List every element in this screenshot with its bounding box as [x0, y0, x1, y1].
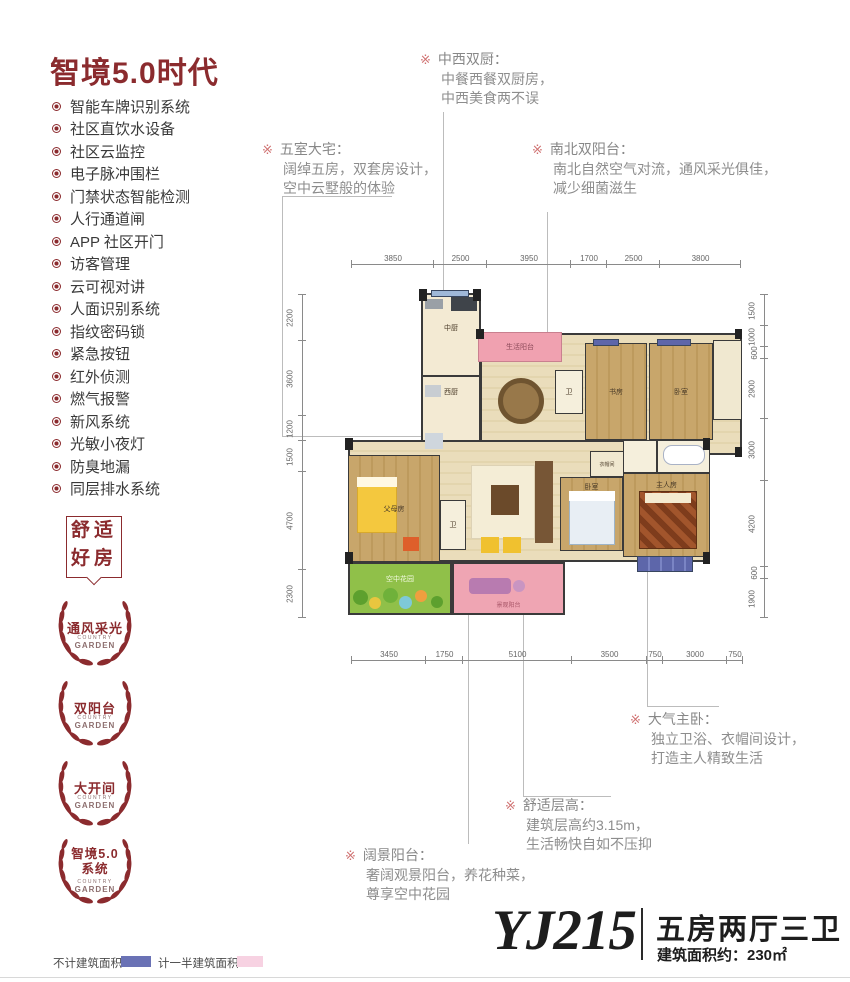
feature-label: 电子脉冲围栏	[70, 163, 160, 184]
badge-sub: GARDEN	[49, 885, 141, 894]
bed-pillow	[569, 491, 615, 501]
feature-label: 燃气报警	[70, 388, 130, 409]
bed-pillow	[645, 493, 691, 503]
feature-item: 智能车牌识别系统	[52, 95, 190, 118]
badge-ventilation: 通风采光 COUNTRY GARDEN	[49, 592, 141, 670]
bathtub	[663, 445, 705, 465]
stamp-line: 舒适	[67, 517, 121, 545]
room-label-kitchen-west: 西厨	[444, 387, 458, 397]
feature-label: 光敏小夜灯	[70, 433, 145, 454]
feature-label: 社区云监控	[70, 141, 145, 162]
room-label-sky-garden: 空中花园	[386, 574, 414, 584]
flower-marker-icon: ※	[505, 798, 516, 813]
bullet-icon	[52, 327, 61, 336]
feature-label: 同层排水系统	[70, 478, 160, 499]
feature-label: 红外侦测	[70, 366, 130, 387]
kitchen-counter	[425, 299, 443, 309]
callout-title: 阔景阳台：	[363, 847, 433, 863]
room-service-balcony: 生活阳台	[478, 332, 562, 362]
room-label-bath: 卫	[566, 387, 573, 397]
balcony-cushion	[513, 580, 525, 592]
feature-item: 云可视对讲	[52, 275, 190, 298]
window	[657, 339, 691, 346]
room-label-view-balcony: 景观阳台	[496, 600, 520, 609]
plant	[383, 588, 398, 603]
feature-item: 访客管理	[52, 253, 190, 276]
leader-line	[282, 196, 392, 197]
unit-model: YJ215	[492, 898, 636, 963]
bullet-icon	[52, 349, 61, 358]
bullet-icon	[52, 214, 61, 223]
plant	[369, 597, 381, 609]
room-label-master: 主人房	[656, 480, 677, 490]
callout-title: 大气主卧：	[648, 711, 718, 727]
bullet-icon	[52, 372, 61, 381]
room-shower	[623, 440, 657, 473]
wall-block	[345, 552, 353, 564]
callout-dual-kitchen: ※中西双厨： 中餐西餐双厨房， 中西美食两不误	[420, 50, 553, 109]
leader-line	[282, 196, 283, 436]
plant	[431, 596, 443, 608]
callout-line: 中西美食两不误	[420, 89, 553, 109]
feature-item: 社区云监控	[52, 140, 190, 163]
flower-marker-icon: ※	[532, 142, 543, 157]
feature-item: 门禁状态智能检测	[52, 185, 190, 208]
dining-table	[498, 378, 544, 424]
feature-list: 智能车牌识别系统 社区直饮水设备 社区云监控 电子脉冲围栏 门禁状态智能检测 人…	[52, 95, 190, 500]
window	[593, 339, 619, 346]
feature-item: 同层排水系统	[52, 478, 190, 501]
bullet-icon	[52, 439, 61, 448]
window	[431, 290, 469, 297]
stamp-line: 好房	[67, 545, 121, 573]
callout-line: 减少细菌滋生	[532, 179, 777, 199]
feature-item: 红外侦测	[52, 365, 190, 388]
room-label-bedroom: 卧室	[585, 482, 599, 492]
room-label-cloakroom: 衣帽间	[599, 461, 614, 468]
callout-line: 奢阔观景阳台，养花种菜，	[345, 866, 534, 886]
room-label-bedroom: 卧室	[674, 387, 688, 397]
bullet-icon	[52, 192, 61, 201]
badge-label: 智境5.0	[49, 847, 141, 862]
legend-no-area-label: 不计建筑面积	[53, 955, 122, 971]
room-label-kitchen-cn: 中厨	[444, 323, 458, 333]
feature-label: 指纹密码锁	[70, 321, 145, 342]
callout-title: 中西双厨：	[438, 51, 508, 67]
bullet-icon	[52, 484, 61, 493]
feature-item: 燃气报警	[52, 388, 190, 411]
room-bath-1: 卫	[555, 370, 583, 414]
wall-block	[476, 329, 484, 339]
feature-label: 人面识别系统	[70, 298, 160, 319]
callout-view-balcony: ※阔景阳台： 奢阔观景阳台，养花种菜， 尊享空中花园	[345, 846, 534, 905]
bullet-icon	[52, 394, 61, 403]
plant	[353, 590, 368, 605]
bullet-icon	[52, 462, 61, 471]
balcony-sofa	[469, 578, 511, 594]
wall-block	[345, 438, 353, 450]
dimension-right: 1500 1000 600 2900 3000 4200 600 1900	[752, 295, 765, 618]
feature-item: 光敏小夜灯	[52, 433, 190, 456]
bullet-icon	[52, 169, 61, 178]
title-divider	[641, 908, 643, 960]
feature-item: 电子脉冲围栏	[52, 163, 190, 186]
callout-title: 五室大宅：	[280, 141, 350, 157]
room-bedroom-2: 卧室	[649, 343, 713, 440]
feature-label: APP 社区开门	[70, 231, 164, 252]
feature-item: 紧急按钮	[52, 343, 190, 366]
flower-marker-icon: ※	[345, 848, 356, 863]
fridge	[425, 433, 443, 449]
feature-item: 社区直饮水设备	[52, 118, 190, 141]
bullet-icon	[52, 237, 61, 246]
feature-item: 防臭地漏	[52, 455, 190, 478]
feature-item: 指纹密码锁	[52, 320, 190, 343]
bullet-icon	[52, 417, 61, 426]
room-cloakroom: 衣帽间	[590, 451, 624, 477]
callout-dual-balcony: ※南北双阳台： 南北自然空气对流，通风采光俱佳， 减少细菌滋生	[532, 140, 777, 199]
room-utility	[713, 340, 742, 420]
callout-line: 独立卫浴、衣帽间设计，	[630, 730, 805, 750]
room-label-bath: 卫	[450, 520, 457, 530]
dimension-left: 2200 3600 1200 1500 4700 2300	[290, 295, 303, 618]
wall-block	[419, 289, 427, 301]
plant	[415, 590, 427, 602]
badge-open-space: 大开间 COUNTRY GARDEN	[49, 752, 141, 830]
dimension-bottom: 3450 1750 5100 3500 750 3000 750	[352, 648, 743, 661]
leader-line	[647, 706, 719, 707]
badge-smart-system: 智境5.0系统 COUNTRY GARDEN	[49, 830, 141, 908]
coffee-table	[491, 485, 519, 515]
feature-label: 防臭地漏	[70, 456, 130, 477]
feature-item: 人面识别系统	[52, 298, 190, 321]
dimension-top: 3850 2500 3950 1700 2500 3800	[352, 252, 741, 265]
feature-item: 新风系统	[52, 410, 190, 433]
flower-marker-icon: ※	[630, 712, 641, 727]
feature-label: 智能车牌识别系统	[70, 96, 190, 117]
feature-label: 门禁状态智能检测	[70, 186, 190, 207]
floor-plan: 中厨 西厨 生活阳台 卫 书房 卧室 父母房 卫	[345, 285, 745, 625]
badge-sub: GARDEN	[49, 641, 141, 650]
feature-item: APP 社区开门	[52, 230, 190, 253]
legend-half-area-label: 计一半建筑面积	[158, 955, 239, 971]
bed-pillow	[357, 477, 397, 487]
bullet-icon	[52, 147, 61, 156]
feature-label: 访客管理	[70, 253, 130, 274]
bay-window	[637, 556, 693, 572]
armchair-yellow	[503, 537, 521, 553]
plant	[399, 596, 412, 609]
wall-block	[703, 438, 710, 450]
callout-master-bedroom: ※大气主卧： 独立卫浴、衣帽间设计， 打造主人精致生活	[630, 710, 805, 769]
feature-label: 社区直饮水设备	[70, 118, 175, 139]
bullet-icon	[52, 102, 61, 111]
bottom-rule	[0, 977, 850, 978]
room-label-study: 书房	[609, 387, 623, 397]
leader-line	[468, 596, 469, 844]
flower-marker-icon: ※	[262, 142, 273, 157]
feature-label: 云可视对讲	[70, 276, 145, 297]
room-study: 书房	[585, 343, 647, 440]
callout-line: 建筑层高约3.15m，	[505, 816, 652, 836]
unit-area: 建筑面积约：230㎡	[657, 944, 787, 965]
badge-label: 系统	[49, 862, 141, 877]
brochure-page: 智境5.0时代 智能车牌识别系统 社区直饮水设备 社区云监控 电子脉冲围栏 门禁…	[0, 0, 850, 982]
feature-label: 人行通道闸	[70, 208, 145, 229]
callout-line: 中餐西餐双厨房，	[420, 70, 553, 90]
sink	[425, 385, 441, 397]
wall-block	[703, 552, 710, 564]
unit-layout: 五房两厅三卫	[656, 906, 842, 948]
bullet-icon	[52, 304, 61, 313]
armchair-yellow	[481, 537, 499, 553]
bullet-icon	[52, 282, 61, 291]
wall-block	[735, 329, 742, 339]
leader-line	[523, 796, 611, 797]
flower-marker-icon: ※	[420, 52, 431, 67]
bullet-icon	[52, 124, 61, 133]
room-bath-2: 卫	[440, 500, 466, 550]
page-title: 智境5.0时代	[50, 48, 219, 92]
sofa	[535, 461, 553, 543]
armchair-orange	[403, 537, 419, 551]
badge-sub: GARDEN	[49, 801, 141, 810]
legend-half-area-swatch	[237, 956, 263, 967]
room-label-service-balcony: 生活阳台	[506, 342, 534, 352]
wall-divider	[423, 375, 479, 377]
callout-title: 南北双阳台：	[550, 141, 634, 157]
badge-double-balcony: 双阳台 COUNTRY GARDEN	[49, 672, 141, 750]
room-label-parents: 父母房	[384, 504, 405, 514]
callout-title: 舒适层高：	[523, 797, 593, 813]
wall-block	[473, 289, 481, 301]
callout-line: 阔绰五房，双套房设计，	[262, 160, 437, 180]
callout-five-rooms: ※五室大宅： 阔绰五房，双套房设计， 空中云墅般的体验	[262, 140, 437, 199]
comfort-home-stamp: 舒适 好房	[66, 516, 122, 578]
feature-label: 紧急按钮	[70, 343, 130, 364]
bullet-icon	[52, 259, 61, 268]
feature-item: 人行通道闸	[52, 208, 190, 231]
wall-block	[735, 447, 742, 457]
badge-sub: GARDEN	[49, 721, 141, 730]
callout-line: 打造主人精致生活	[630, 749, 805, 769]
legend-no-area-swatch	[121, 956, 151, 967]
feature-label: 新风系统	[70, 411, 130, 432]
callout-line: 南北自然空气对流，通风采光俱佳，	[532, 160, 777, 180]
